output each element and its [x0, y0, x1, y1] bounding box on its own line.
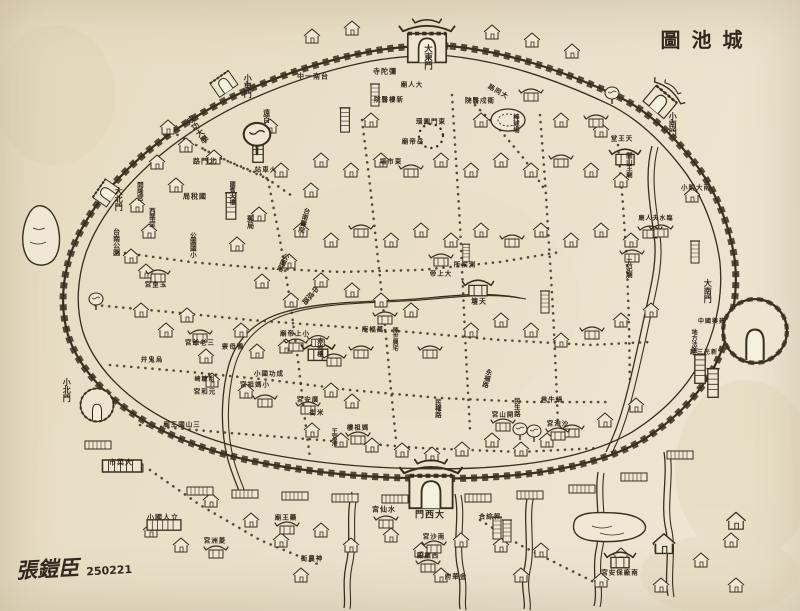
building-tower-glyph	[502, 520, 512, 542]
building-temple-glyph	[399, 165, 423, 177]
building-house-glyph	[563, 233, 579, 247]
building-house-glyph	[238, 384, 254, 398]
building-house-glyph	[597, 413, 613, 427]
building-temple-glyph	[609, 149, 640, 165]
building-house-glyph	[158, 323, 174, 337]
artist-name: 張鎧臣	[15, 552, 79, 585]
map-title: 圖池城	[632, 24, 782, 53]
east-gate-roundabout	[419, 124, 443, 148]
building-tower-glyph	[462, 244, 470, 262]
building-house-glyph	[273, 533, 289, 547]
building-house-glyph	[168, 178, 184, 192]
building-temple-glyph	[580, 327, 604, 339]
building-tree-glyph	[605, 87, 619, 104]
building-long-glyph	[621, 473, 647, 481]
building-temple-glyph	[519, 89, 543, 101]
building-long-glyph	[382, 495, 408, 503]
building-house-glyph	[129, 198, 145, 212]
building-house-glyph	[623, 233, 639, 247]
building-house-glyph	[304, 29, 320, 43]
gate-great-east	[399, 19, 454, 62]
building-house-glyph	[484, 25, 500, 39]
building-house-glyph	[684, 188, 700, 202]
building-long-glyph	[332, 494, 358, 502]
building-house-glyph	[454, 442, 470, 456]
building-house-glyph	[523, 163, 539, 177]
building-long-glyph	[232, 490, 258, 498]
building-house-glyph	[123, 249, 139, 263]
building-house-glyph	[343, 538, 359, 552]
gate-small-north	[81, 389, 114, 422]
building-house-glyph	[533, 543, 549, 557]
building-house-glyph	[373, 153, 389, 167]
building-long-glyph	[465, 494, 491, 502]
building-house-glyph	[229, 237, 245, 251]
building-tower-glyph	[225, 193, 237, 219]
building-house-glyph	[364, 438, 380, 452]
building-long-glyph	[147, 520, 181, 530]
waterway-bank	[461, 495, 466, 610]
building-house-glyph	[204, 373, 220, 387]
building-tree-glyph	[513, 423, 527, 440]
building-temple-glyph	[416, 560, 440, 572]
building-long-glyph	[103, 460, 142, 472]
building-house-glyph	[303, 183, 319, 197]
building-house-glyph	[513, 568, 529, 582]
building-house-glyph	[363, 113, 379, 127]
building-house-glyph	[179, 308, 195, 322]
building-long-glyph	[85, 441, 111, 449]
building-long-glyph	[569, 485, 595, 493]
building-house-glyph	[173, 538, 189, 552]
building-house-glyph	[564, 44, 580, 58]
building-house-glyph	[344, 21, 360, 35]
building-house-glyph	[493, 153, 509, 167]
building-house-glyph	[273, 163, 289, 177]
paper-stains	[0, 25, 800, 611]
building-house-glyph	[133, 303, 149, 317]
building-long-glyph	[282, 492, 308, 500]
building-house-glyph	[251, 207, 267, 221]
building-temple-glyph	[374, 516, 398, 528]
building-temple-glyph	[549, 155, 573, 167]
building-house-glyph	[513, 442, 529, 456]
building-house-glyph	[484, 433, 500, 447]
waterway	[455, 494, 460, 609]
building-house-glyph	[313, 523, 329, 537]
signature-date: 250221	[86, 563, 133, 581]
building-house-glyph	[160, 120, 176, 134]
building-temple-glyph	[491, 419, 515, 431]
building-house-glyph	[524, 33, 540, 47]
building-house-glyph	[149, 155, 165, 169]
building-house-glyph	[243, 513, 259, 527]
building-temple-glyph	[275, 522, 299, 534]
building-long-glyph	[517, 491, 543, 499]
building-temple-glyph	[620, 250, 644, 262]
building-tree-glyph	[89, 293, 103, 310]
building-house-glyph	[333, 433, 349, 447]
building-house-glyph	[553, 113, 569, 127]
building-temple-glyph	[584, 115, 608, 127]
building-house-glyph	[198, 349, 214, 363]
building-house-glyph	[613, 173, 629, 187]
building-temple-glyph	[188, 330, 212, 342]
building-temple-glyph	[204, 546, 228, 558]
building-house-glyph	[141, 224, 157, 238]
gate-great-west	[400, 460, 462, 509]
building-house-glyph	[383, 528, 399, 542]
building-tower-glyph	[690, 241, 700, 263]
pond	[23, 206, 60, 265]
artist-signature: 張鎧臣 250221	[15, 549, 132, 585]
stadium-oval	[491, 109, 525, 131]
building-house-glyph	[583, 163, 599, 177]
building-long-glyph	[667, 451, 693, 459]
building-tower-glyph	[707, 369, 720, 398]
building-house-glyph	[433, 153, 449, 167]
building-house-glyph	[643, 303, 659, 317]
waterway	[523, 494, 528, 609]
building-tower-glyph	[694, 355, 707, 384]
city-map-canvas	[0, 0, 800, 611]
waterway-bank	[529, 495, 534, 610]
building-tower-glyph	[540, 291, 550, 313]
building-house-glyph	[293, 568, 309, 582]
building-house-glyph	[628, 398, 644, 412]
building-house-glyph	[313, 153, 329, 167]
building-house-glyph	[463, 163, 479, 177]
building-long-glyph	[187, 487, 213, 495]
building-temple-glyph	[253, 395, 277, 407]
building-house-glyph	[394, 443, 410, 457]
building-house-glyph	[473, 113, 489, 127]
building-house-glyph	[593, 223, 609, 237]
building-house-glyph	[613, 313, 629, 327]
building-tower-glyph	[340, 108, 351, 132]
building-tower-glyph	[370, 84, 380, 106]
building-tree-glyph	[244, 123, 271, 155]
hand-drawn-city-map: 中一南台寺陀彌廟人大院醫樓新院醫戍衛路同大環圓門東廟帝岳場市東站車火路門北成功大…	[0, 0, 800, 611]
gate-great-south	[723, 299, 787, 363]
building-house-glyph	[653, 534, 675, 554]
building-tower-glyph	[492, 517, 502, 539]
building-house-glyph	[343, 163, 359, 177]
